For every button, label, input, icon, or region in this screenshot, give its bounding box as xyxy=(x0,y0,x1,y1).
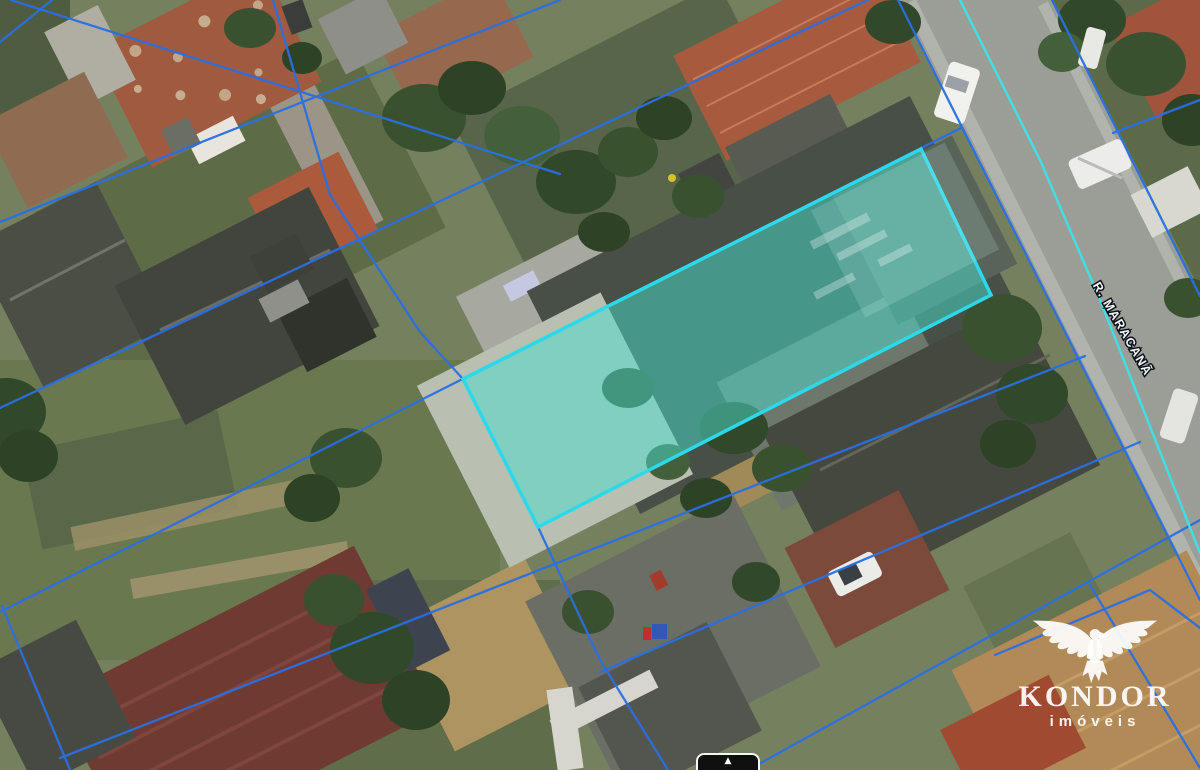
listing-map-image: R. MARACANÃ KONDOR imóveis ▲ xyxy=(0,0,1200,770)
blue-bin xyxy=(652,624,667,639)
up-arrow-icon: ▲ xyxy=(725,755,732,768)
red-bin xyxy=(643,627,651,640)
aerial-photo: R. MARACANÃ xyxy=(0,0,1200,770)
sunflower-dot xyxy=(668,174,676,182)
expand-map-button[interactable]: ▲ xyxy=(696,753,760,770)
